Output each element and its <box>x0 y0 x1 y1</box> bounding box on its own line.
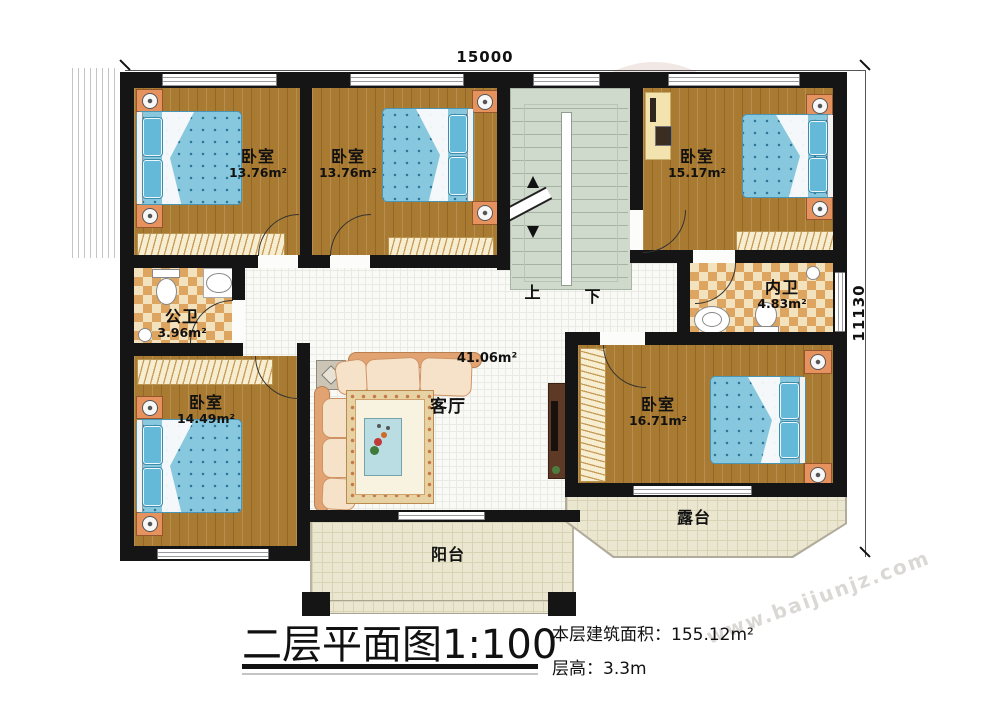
room-label-bedroom-br: 卧室 16.71m² <box>618 396 698 429</box>
pillow <box>780 383 799 419</box>
room-name: 露台 <box>654 509 734 527</box>
lamp-icon <box>477 94 493 110</box>
room-name: 卧室 <box>218 148 298 166</box>
living-area-label: 41.06m² <box>437 352 537 367</box>
wall <box>497 88 510 270</box>
drawing-title: 二层平面图1:100 <box>242 612 557 670</box>
headboard <box>467 109 473 201</box>
bed <box>742 114 834 198</box>
floor-area-info: 本层建筑面积：155.12m² <box>552 620 754 645</box>
room-name: 公卫 <box>142 308 222 326</box>
bed-sheet <box>776 115 808 197</box>
room-name: 卧室 <box>166 394 246 412</box>
dimension-line-top <box>125 70 865 71</box>
window <box>835 272 845 332</box>
nightstand <box>136 396 163 419</box>
bed-sheet <box>416 109 448 201</box>
exterior-ledge <box>72 68 120 258</box>
title-underline <box>242 664 538 669</box>
door-opening <box>600 332 645 345</box>
speaker <box>650 98 656 122</box>
room-area: 16.71m² <box>618 414 698 428</box>
nightstand <box>136 204 163 228</box>
plant <box>552 466 560 474</box>
room-label-bedroom-tl: 卧室 13.76m² <box>218 148 298 181</box>
window <box>157 549 269 559</box>
lamp-icon <box>142 93 158 109</box>
wall <box>630 88 643 213</box>
lamp-icon <box>812 98 828 114</box>
floor-area-value: 155.12m² <box>671 625 754 645</box>
room-area: 13.76m² <box>308 166 388 180</box>
tv <box>551 401 558 451</box>
pillow <box>143 426 162 464</box>
wall <box>120 72 134 561</box>
toilet <box>156 278 177 305</box>
stairs-up-label: 上 <box>521 284 545 302</box>
window <box>162 74 277 86</box>
flowers <box>370 446 379 455</box>
pillow <box>143 160 162 198</box>
window <box>398 512 485 520</box>
lamp-icon <box>477 205 493 221</box>
nightstand <box>806 197 833 220</box>
pillow <box>449 157 467 195</box>
room-area: 3.96m² <box>142 326 222 340</box>
bed <box>136 419 242 513</box>
floor-height-value: 3.3m <box>603 659 647 679</box>
flowers <box>374 438 382 446</box>
room-name: 卧室 <box>657 148 737 166</box>
bed-sheet <box>748 377 780 463</box>
room-name: 阳台 <box>408 546 488 564</box>
wall <box>677 250 690 345</box>
room-area: 15.17m² <box>657 166 737 180</box>
wardrobe <box>137 359 273 385</box>
coffee-table <box>364 418 402 476</box>
pillow <box>143 468 162 506</box>
stairs-up-text: 上 <box>521 284 545 302</box>
decor-dot <box>386 426 390 430</box>
window <box>533 74 600 86</box>
dimension-tick <box>119 59 130 70</box>
nightstand <box>136 512 163 536</box>
room-label-bedroom-tm: 卧室 13.76m² <box>308 148 388 181</box>
headboard <box>799 377 805 463</box>
wall <box>297 343 310 561</box>
door-opening <box>330 255 370 268</box>
room-label-living: 客厅 <box>408 398 488 418</box>
bed <box>382 108 474 202</box>
room-label-terrace: 露台 <box>654 509 734 527</box>
dimension-width-label: 15000 <box>445 48 525 66</box>
floor-height-label: 层高： <box>552 659 603 679</box>
door-opening <box>693 250 735 263</box>
pillow <box>780 422 799 458</box>
shower-head <box>806 266 820 280</box>
floor-area-label: 本层建筑面积： <box>552 625 671 645</box>
window <box>633 486 752 495</box>
lamp-icon <box>142 400 158 416</box>
sink <box>206 273 232 293</box>
room-label-balcony: 阳台 <box>408 546 488 564</box>
room-name: 内卫 <box>742 279 822 297</box>
pillow <box>449 115 467 153</box>
bed <box>710 376 806 464</box>
wall <box>232 255 245 300</box>
room-area: 41.06m² <box>437 352 537 367</box>
wall <box>134 255 510 268</box>
wall <box>120 343 243 356</box>
title-underline-thin <box>242 673 538 675</box>
bed-sheet <box>162 420 194 512</box>
pillow <box>809 158 827 192</box>
room-area: 13.76m² <box>218 166 298 180</box>
room-label-bath-public: 公卫 3.96m² <box>142 308 222 341</box>
lamp-icon <box>810 467 826 483</box>
room-name: 卧室 <box>308 148 388 166</box>
wall <box>565 345 578 497</box>
floor-plan-canvas: www.baijunjz.com www.baijunjz.com www.ba… <box>0 0 1000 706</box>
toilet-tank <box>152 269 180 278</box>
stairs-down-label: 下 <box>581 288 605 306</box>
stair-arrow-down <box>527 226 539 238</box>
door-opening <box>630 210 643 250</box>
flowers <box>381 432 387 438</box>
sink-basin <box>702 312 722 327</box>
door-opening <box>258 255 298 268</box>
room-label-bedroom-bl: 卧室 14.49m² <box>166 394 246 427</box>
floor-height-info: 层高：3.3m <box>552 654 647 679</box>
pillow <box>143 118 162 156</box>
nightstand <box>804 350 832 374</box>
dimension-tick <box>859 59 870 70</box>
room-name: 客厅 <box>408 398 488 418</box>
room-area: 4.83m² <box>742 297 822 311</box>
stairs-down-text: 下 <box>581 288 605 306</box>
lamp-icon <box>812 201 828 217</box>
window <box>668 74 800 86</box>
window <box>350 74 464 86</box>
stair-divider <box>561 112 572 286</box>
room-label-bath-private: 内卫 4.83m² <box>742 279 822 312</box>
stair-arrow-up <box>527 176 539 188</box>
nightstand <box>136 89 163 112</box>
dimension-height-label: 11130 <box>850 283 866 343</box>
decor-dot <box>377 424 381 428</box>
nightstand <box>472 201 498 225</box>
tv <box>655 126 672 146</box>
room-name: 卧室 <box>618 396 698 414</box>
door-opening <box>232 300 245 343</box>
lamp-icon <box>142 208 158 224</box>
lamp-icon <box>810 354 826 370</box>
pillow <box>809 121 827 155</box>
wardrobe <box>580 348 606 482</box>
nightstand <box>472 90 498 113</box>
room-area: 14.49m² <box>166 412 246 426</box>
lamp-icon <box>142 516 158 532</box>
bed-sheet <box>162 112 194 204</box>
room-label-bedroom-tr: 卧室 15.17m² <box>657 148 737 181</box>
